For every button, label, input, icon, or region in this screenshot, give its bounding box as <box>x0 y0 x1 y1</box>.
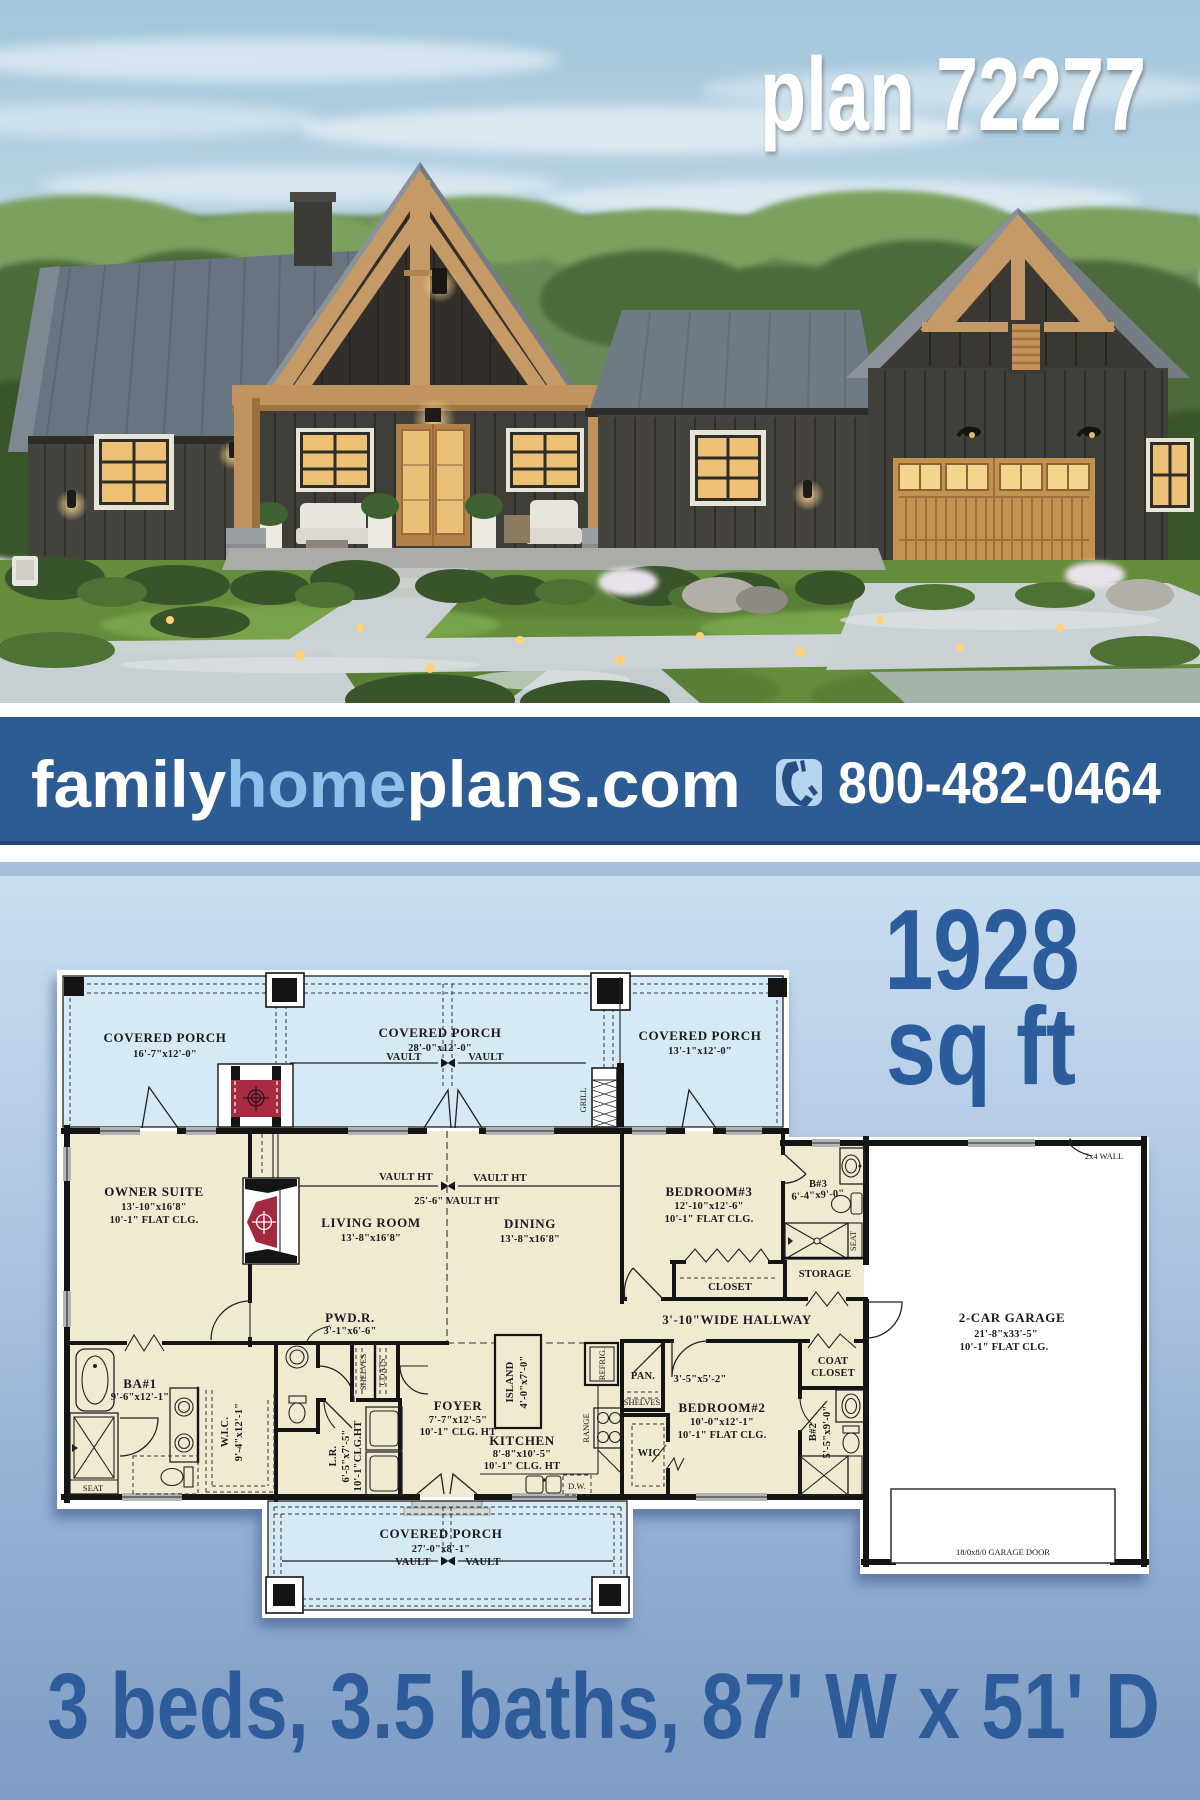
svg-text:SEAT: SEAT <box>83 1483 104 1493</box>
svg-text:CLOSET: CLOSET <box>811 1368 855 1379</box>
svg-text:REFRIG.: REFRIG. <box>597 1348 607 1380</box>
svg-text:STORAGE: STORAGE <box>799 1269 852 1280</box>
svg-text:6'-5"x7'-5": 6'-5"x7'-5" <box>341 1430 352 1483</box>
svg-text:SHELVES: SHELVES <box>358 1353 368 1390</box>
svg-text:5'-5"x9'-0": 5'-5"x9'-0" <box>822 1406 833 1459</box>
svg-text:BEDROOM#2: BEDROOM#2 <box>678 1400 765 1415</box>
svg-text:VAULT HT: VAULT HT <box>379 1172 433 1183</box>
svg-text:800-482-0464: 800-482-0464 <box>838 750 1161 815</box>
svg-text:SEAT: SEAT <box>848 1230 858 1251</box>
svg-text:16'-7"x12'-0": 16'-7"x12'-0" <box>133 1049 197 1060</box>
svg-text:COVERED PORCH: COVERED PORCH <box>639 1028 762 1043</box>
svg-text:COVERED PORCH: COVERED PORCH <box>380 1526 503 1541</box>
svg-text:10'-1" CLG. HT: 10'-1" CLG. HT <box>484 1461 561 1472</box>
svg-text:DINING: DINING <box>504 1216 556 1231</box>
svg-text:18/0x8/0 GARAGE DOOR: 18/0x8/0 GARAGE DOOR <box>956 1547 1050 1557</box>
svg-text:10'-1" FLAT CLG.: 10'-1" FLAT CLG. <box>678 1430 767 1441</box>
svg-text:4'-0"x7'-0": 4'-0"x7'-0" <box>519 1356 530 1409</box>
svg-text:3'-1"x6'-6": 3'-1"x6'-6" <box>324 1326 377 1337</box>
svg-text:GRILL: GRILL <box>578 1087 588 1112</box>
svg-text:COAT: COAT <box>818 1356 848 1367</box>
svg-text:D.W.: D.W. <box>568 1481 586 1491</box>
svg-text:COVERED PORCH: COVERED PORCH <box>379 1025 502 1040</box>
svg-text:L.R.: L.R. <box>328 1446 339 1467</box>
svg-text:W.I.C.: W.I.C. <box>220 1417 231 1447</box>
svg-text:B#3: B#3 <box>809 1179 827 1190</box>
svg-text:10'-1" FLAT CLG.: 10'-1" FLAT CLG. <box>960 1342 1049 1353</box>
svg-text:13'-8"x16'8": 13'-8"x16'8" <box>500 1234 560 1245</box>
svg-text:10'-1"CLG.HT: 10'-1"CLG.HT <box>353 1421 364 1492</box>
svg-text:VAULT HT: VAULT HT <box>473 1173 527 1184</box>
svg-text:9'-4"x12'-1": 9'-4"x12'-1" <box>234 1403 245 1461</box>
svg-text:13'-1"x12'-0": 13'-1"x12'-0" <box>668 1046 732 1057</box>
svg-text:plan 72277: plan 72277 <box>760 37 1146 153</box>
svg-text:BEDROOM#3: BEDROOM#3 <box>665 1184 752 1199</box>
svg-text:12'-10"x12'-6": 12'-10"x12'-6" <box>674 1201 743 1212</box>
svg-text:WIC: WIC <box>638 1448 661 1459</box>
svg-text:SHELVES: SHELVES <box>624 1397 661 1407</box>
svg-text:3'-10"WIDE HALLWAY: 3'-10"WIDE HALLWAY <box>662 1312 812 1327</box>
svg-text:BA#1: BA#1 <box>123 1376 156 1391</box>
svg-text:PWD.R.: PWD.R. <box>325 1310 375 1325</box>
svg-text:3 beds, 3.5 baths, 87' W x 51': 3 beds, 3.5 baths, 87' W x 51' D <box>47 1654 1160 1758</box>
svg-text:10'-1" FLAT CLG.: 10'-1" FLAT CLG. <box>110 1215 199 1226</box>
svg-text:ISLAND: ISLAND <box>505 1361 516 1402</box>
svg-text:VAULT: VAULT <box>395 1557 430 1568</box>
svg-text:10'-1" CLG. HT: 10'-1" CLG. HT <box>420 1427 497 1438</box>
svg-text:FOYER: FOYER <box>434 1398 483 1413</box>
svg-text:27'-0"x8'-1": 27'-0"x8'-1" <box>412 1544 470 1555</box>
svg-text:VAULT: VAULT <box>468 1052 503 1063</box>
svg-text:9'-6"x12'-1": 9'-6"x12'-1" <box>111 1392 169 1403</box>
svg-text:VAULT: VAULT <box>386 1052 421 1063</box>
svg-text:B#2: B#2 <box>808 1423 819 1441</box>
svg-text:8'-8"x10'-5": 8'-8"x10'-5" <box>493 1449 551 1460</box>
svg-text:13'-8"x16'8": 13'-8"x16'8" <box>341 1233 401 1244</box>
svg-text:2-CAR GARAGE: 2-CAR GARAGE <box>959 1310 1066 1325</box>
svg-text:25'-6" VAULT HT: 25'-6" VAULT HT <box>414 1196 499 1207</box>
svg-text:13'-10"x16'8": 13'-10"x16'8" <box>121 1202 187 1213</box>
svg-text:VAULT: VAULT <box>465 1557 500 1568</box>
svg-text:LIVING ROOM: LIVING ROOM <box>321 1215 420 1230</box>
svg-text:7'-7"x12'-5": 7'-7"x12'-5" <box>429 1415 487 1426</box>
svg-text:PAN.: PAN. <box>631 1371 655 1382</box>
svg-text:10'-1" FLAT CLG.: 10'-1" FLAT CLG. <box>665 1214 754 1225</box>
svg-text:2x4 WALL: 2x4 WALL <box>1085 1151 1123 1161</box>
svg-text:OWNER SUITE: OWNER SUITE <box>104 1184 203 1199</box>
svg-text:COATS: COATS <box>377 1358 387 1385</box>
svg-text:familyhomeplans.com: familyhomeplans.com <box>31 749 741 822</box>
svg-text:KITCHEN: KITCHEN <box>489 1433 555 1448</box>
svg-text:sq ft: sq ft <box>886 986 1076 1109</box>
svg-text:10'-0"x12'-1": 10'-0"x12'-1" <box>690 1417 754 1428</box>
svg-text:CLOSET: CLOSET <box>708 1282 752 1293</box>
svg-text:3'-5"x5'-2": 3'-5"x5'-2" <box>674 1374 727 1385</box>
svg-text:COVERED PORCH: COVERED PORCH <box>104 1030 227 1045</box>
svg-text:21'-8"x33'-5": 21'-8"x33'-5" <box>974 1329 1038 1340</box>
svg-text:RANGE: RANGE <box>581 1413 591 1442</box>
